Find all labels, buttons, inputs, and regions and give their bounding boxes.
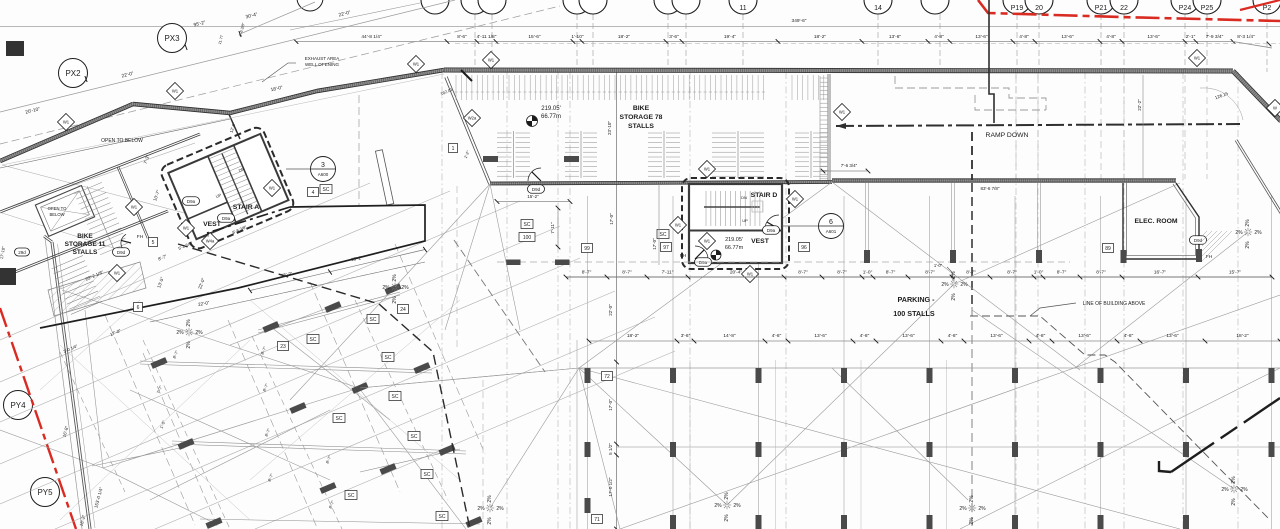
svg-text:BIKE: BIKE [633,105,650,112]
svg-text:D9d: D9d [1194,238,1203,243]
svg-text:100: 100 [523,235,532,241]
svg-text:14'-8": 14'-8" [723,333,736,339]
svg-text:3'-6": 3'-6" [669,34,679,40]
svg-text:W1: W1 [1194,56,1201,61]
svg-text:2%: 2% [1245,241,1251,249]
svg-text:2%: 2% [1231,498,1237,506]
svg-text:W2a: W2a [468,116,477,121]
svg-text:11: 11 [739,5,746,12]
svg-text:P24: P24 [1179,5,1192,12]
svg-text:7'-11": 7'-11" [550,222,555,234]
svg-text:PARKING -: PARKING - [898,295,936,304]
svg-text:5 1/2": 5 1/2" [608,443,613,455]
svg-text:STAIR D: STAIR D [751,192,778,199]
svg-text:24: 24 [400,307,406,313]
svg-text:2%: 2% [382,285,390,291]
svg-text:SC: SC [524,222,531,228]
svg-text:2%: 2% [401,285,409,291]
svg-text:W1: W1 [413,62,420,67]
svg-text:D9a: D9a [222,216,231,221]
svg-text:UP: UP [742,218,748,223]
svg-text:STALLS: STALLS [73,249,98,256]
svg-text:SC: SC [310,337,317,343]
svg-text:2%: 2% [1240,487,1248,493]
svg-text:6: 6 [829,219,833,226]
svg-text:13'-6": 13'-6" [1166,333,1179,339]
svg-text:13'-6": 13'-6" [975,34,988,40]
svg-text:LINE OF BUILDING ABOVE: LINE OF BUILDING ABOVE [1083,301,1146,307]
svg-text:2%: 2% [1235,230,1243,236]
svg-text:97: 97 [663,245,669,251]
svg-text:8'-7": 8'-7" [1057,270,1067,276]
svg-text:RAMP DOWN: RAMP DOWN [986,132,1029,139]
svg-text:W1: W1 [704,167,711,172]
svg-text:D9a: D9a [187,199,196,204]
svg-text:W1: W1 [269,186,276,191]
svg-text:16'-7": 16'-7" [1154,270,1167,276]
svg-text:17'-0": 17'-0" [608,399,613,411]
svg-text:W1: W1 [183,226,190,231]
svg-text:6: 6 [137,305,140,311]
svg-text:2'-1": 2'-1" [1186,34,1196,40]
svg-text:14: 14 [874,5,882,12]
svg-text:W4a: W4a [206,239,215,244]
svg-text:1: 1 [452,146,455,152]
svg-text:W1: W1 [675,223,682,228]
svg-text:8'-6": 8'-6" [457,34,467,40]
svg-text:8'-7": 8'-7" [582,270,592,276]
svg-text:1'-0": 1'-0" [1034,270,1044,276]
svg-text:2%: 2% [941,282,949,288]
svg-text:SC: SC [336,416,343,422]
svg-text:4'-8": 4'-8" [948,333,958,339]
svg-text:7'-6 3/4": 7'-6 3/4" [841,163,858,168]
svg-text:VEST: VEST [751,238,770,245]
svg-text:4'-8": 4'-8" [1124,333,1134,339]
svg-text:4'-8": 4'-8" [1036,333,1046,339]
svg-text:D9a: D9a [767,228,776,233]
svg-text:W1: W1 [488,58,495,63]
svg-text:2%: 2% [969,495,975,503]
svg-text:SC: SC [392,394,399,400]
svg-text:7'-11": 7'-11" [662,270,674,276]
svg-text:4'-11 1/8": 4'-11 1/8" [477,34,497,40]
svg-text:71: 71 [594,517,600,523]
svg-text:W: W [1273,106,1277,111]
svg-text:100 STALLS: 100 STALLS [893,309,935,318]
svg-text:2%: 2% [1245,219,1251,227]
svg-text:13'-6": 13'-6" [1147,34,1160,40]
svg-text:EXHAUST AREA: EXHAUST AREA [305,56,339,61]
svg-text:PY5: PY5 [37,488,53,497]
svg-text:18'-2": 18'-2" [627,333,640,339]
svg-text:2%: 2% [392,296,398,304]
svg-text:4'-8": 4'-8" [772,333,782,339]
svg-text:18'-2": 18'-2" [814,34,827,40]
svg-text:13'-6": 13'-6" [990,333,1003,339]
svg-text:D9d: D9d [117,250,126,255]
svg-text:8'-7": 8'-7" [837,270,847,276]
svg-text:349'-6": 349'-6" [792,18,807,24]
svg-text:5: 5 [152,240,155,246]
svg-text:29d: 29d [18,250,26,255]
svg-text:2%: 2% [195,330,203,336]
svg-text:13'-6": 13'-6" [1061,34,1074,40]
svg-text:13'-6": 13'-6" [889,34,902,40]
svg-text:15'-7": 15'-7" [1229,270,1242,276]
svg-text:4: 4 [312,190,315,196]
svg-text:2%: 2% [959,506,967,512]
svg-text:8'-3 1/4": 8'-3 1/4" [1237,34,1255,40]
svg-text:4'-8": 4'-8" [934,34,944,40]
svg-text:89: 89 [1105,246,1111,252]
svg-text:2%: 2% [487,517,493,525]
svg-text:W1: W1 [131,205,138,210]
svg-text:20'-4": 20'-4" [730,270,743,276]
svg-text:20: 20 [1035,5,1043,12]
svg-text:44'-8 1/4": 44'-8 1/4" [361,34,382,40]
svg-text:SC: SC [439,514,446,520]
svg-text:8'-7": 8'-7" [1007,270,1017,276]
svg-text:P25: P25 [1201,5,1214,12]
svg-text:STAIR A: STAIR A [233,204,260,211]
svg-text:2%: 2% [951,293,957,301]
svg-text:P21: P21 [1095,5,1108,12]
svg-text:2%: 2% [186,341,192,349]
svg-text:SC: SC [424,472,431,478]
svg-text:22'-0": 22'-0" [608,304,613,316]
svg-text:2%: 2% [714,503,722,509]
svg-text:VEST: VEST [203,221,222,228]
svg-text:2%: 2% [496,506,504,512]
svg-text:SC: SC [660,232,667,238]
svg-text:1'-10": 1'-10" [571,34,584,40]
svg-text:STORAGE 11: STORAGE 11 [65,241,106,248]
svg-text:13'-6": 13'-6" [1078,333,1091,339]
svg-text:2%: 2% [724,514,730,522]
svg-text:FH: FH [1206,254,1213,260]
svg-text:STALLS: STALLS [628,123,654,130]
svg-text:18'-2": 18'-2" [618,34,631,40]
svg-text:1'-0": 1'-0" [934,263,943,268]
svg-text:2%: 2% [969,517,975,525]
svg-text:SC: SC [370,317,377,323]
svg-text:96: 96 [801,245,807,251]
svg-text:2%: 2% [733,503,741,509]
svg-text:13'-6": 13'-6" [814,333,827,339]
svg-text:DN: DN [741,195,747,200]
svg-text:2%: 2% [724,492,730,500]
svg-text:219.05': 219.05' [541,106,561,112]
svg-text:W1: W1 [747,272,754,277]
svg-text:83'-6 7/8": 83'-6 7/8" [981,186,1000,191]
svg-text:23'-10": 23'-10" [607,121,612,135]
svg-text:D9d: D9d [532,187,541,192]
svg-text:17'-0": 17'-0" [609,213,614,225]
svg-text:1'-0": 1'-0" [863,270,873,276]
svg-text:2%: 2% [1254,230,1262,236]
svg-text:8'-7": 8'-7" [886,270,896,276]
svg-text:SC: SC [323,187,330,193]
svg-text:P19: P19 [1011,5,1024,12]
svg-text:BIKE: BIKE [77,233,93,240]
svg-text:23: 23 [280,344,286,350]
svg-text:W1: W1 [839,110,846,115]
svg-text:W1: W1 [63,120,70,125]
svg-text:2%: 2% [1221,487,1229,493]
svg-text:219.05': 219.05' [725,237,743,243]
svg-text:W1: W1 [704,239,711,244]
svg-text:BELOW: BELOW [49,212,64,217]
svg-text:2%: 2% [392,274,398,282]
svg-text:PX2: PX2 [65,69,81,78]
svg-text:17'-0 1/2": 17'-0 1/2" [608,477,613,496]
svg-text:WELL OPENING: WELL OPENING [305,62,340,67]
svg-text:72: 72 [604,374,610,380]
svg-text:W1: W1 [114,271,121,276]
svg-text:OPEN TO BELOW: OPEN TO BELOW [101,138,143,144]
svg-text:4'-8": 4'-8" [1106,34,1116,40]
svg-text:15'-6": 15'-6" [528,34,541,40]
svg-text:FH: FH [137,234,144,240]
svg-text:A601: A601 [826,229,837,234]
svg-text:W1: W1 [172,89,179,94]
svg-text:STORAGE 78: STORAGE 78 [620,114,663,121]
svg-text:13'-6": 13'-6" [902,333,915,339]
svg-text:4'-8": 4'-8" [1019,34,1029,40]
svg-text:7'-9 3/4": 7'-9 3/4" [1206,34,1224,40]
svg-text:2%: 2% [960,282,968,288]
svg-text:15'-2": 15'-2" [527,194,539,199]
svg-text:PX3: PX3 [164,34,180,43]
svg-text:8'-7": 8'-7" [798,270,808,276]
svg-text:4'-8": 4'-8" [860,333,870,339]
svg-text:8'-7": 8'-7" [966,270,976,276]
svg-text:8'-7": 8'-7" [1096,270,1106,276]
svg-text:OPEN TO: OPEN TO [48,206,67,211]
svg-text:2%: 2% [487,495,493,503]
svg-text:22: 22 [1120,5,1128,12]
svg-text:SC: SC [348,493,355,499]
svg-text:66.77m: 66.77m [725,245,744,251]
svg-text:FH: FH [680,253,687,259]
svg-text:8'-7": 8'-7" [925,270,935,276]
svg-text:3: 3 [321,162,325,169]
svg-text:P2: P2 [1263,5,1272,12]
svg-text:22'-2": 22'-2" [1137,99,1142,111]
svg-text:2%: 2% [978,506,986,512]
svg-text:66.77m: 66.77m [541,114,561,120]
svg-text:17'-0": 17'-0" [652,238,657,250]
svg-text:SC: SC [411,434,418,440]
svg-text:18'-2": 18'-2" [1236,333,1249,339]
svg-text:SC: SC [385,355,392,361]
svg-text:ELEC. ROOM: ELEC. ROOM [1134,218,1177,225]
svg-text:3'-6": 3'-6" [681,333,691,339]
svg-text:2%: 2% [1231,476,1237,484]
svg-text:PY4: PY4 [10,401,26,410]
svg-text:2%: 2% [477,506,485,512]
svg-text:19'-4": 19'-4" [724,34,737,40]
svg-text:2%: 2% [186,319,192,327]
svg-text:2%: 2% [176,330,184,336]
svg-text:2%: 2% [951,271,957,279]
svg-text:8'-7": 8'-7" [622,270,632,276]
svg-text:99: 99 [584,246,590,252]
svg-text:W1: W1 [792,197,799,202]
svg-text:A600: A600 [318,172,329,177]
